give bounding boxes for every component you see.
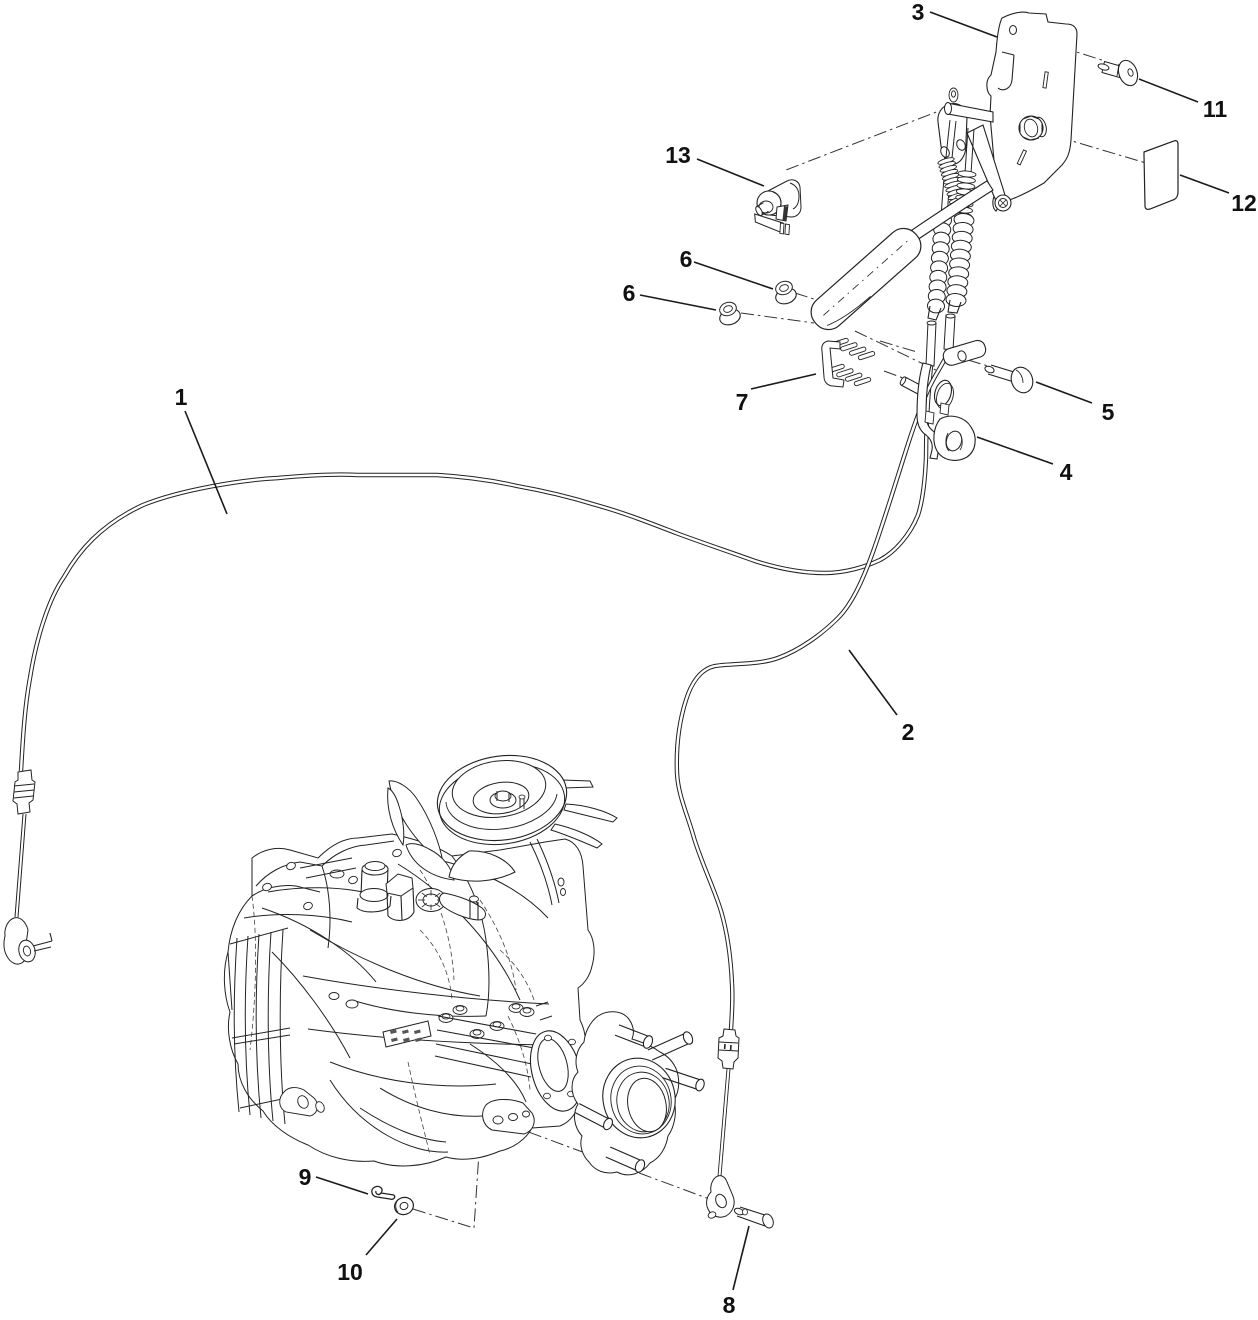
svg-text:3: 3 (912, 0, 925, 25)
svg-text:7: 7 (736, 389, 749, 415)
svg-text:6: 6 (680, 246, 693, 272)
svg-text:11: 11 (1203, 96, 1228, 122)
svg-text:8: 8 (723, 1292, 736, 1318)
svg-text:1: 1 (175, 384, 188, 410)
svg-text:10: 10 (337, 1259, 363, 1285)
svg-text:6: 6 (623, 280, 636, 306)
svg-text:5: 5 (1102, 399, 1115, 425)
svg-text:13: 13 (665, 142, 691, 168)
svg-text:12: 12 (1231, 190, 1257, 216)
svg-text:2: 2 (902, 719, 915, 745)
svg-text:9: 9 (299, 1164, 312, 1190)
svg-text:4: 4 (1060, 459, 1073, 485)
